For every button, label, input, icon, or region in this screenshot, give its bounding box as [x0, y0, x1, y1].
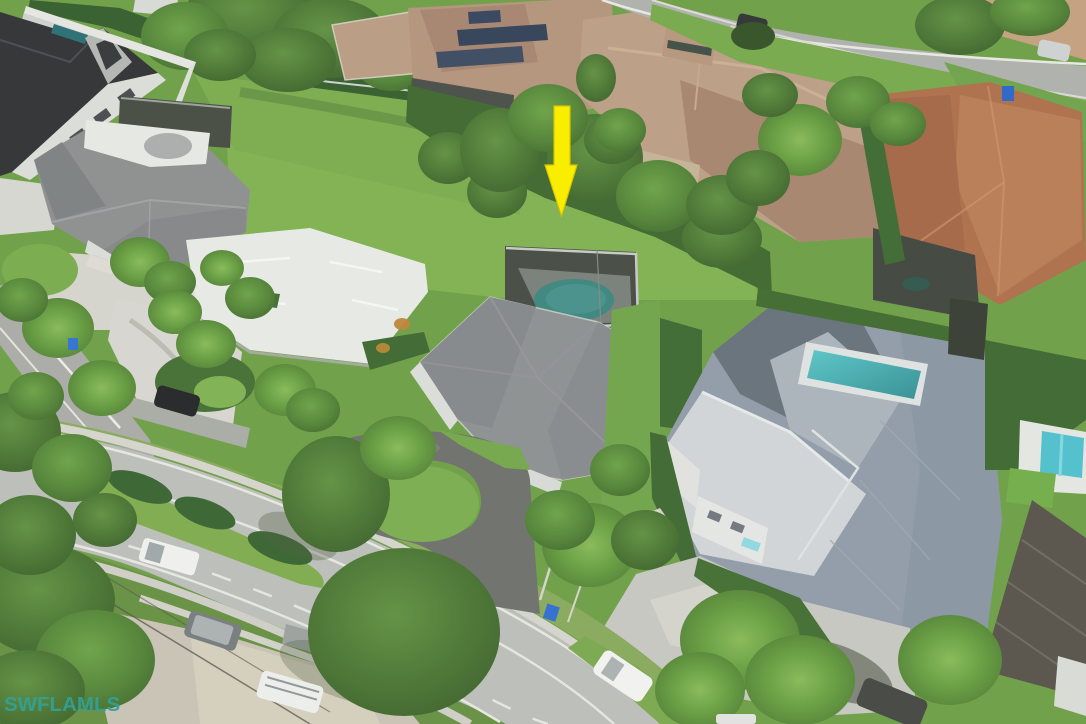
svg-text:SWFLAMLS: SWFLAMLS	[4, 693, 120, 716]
